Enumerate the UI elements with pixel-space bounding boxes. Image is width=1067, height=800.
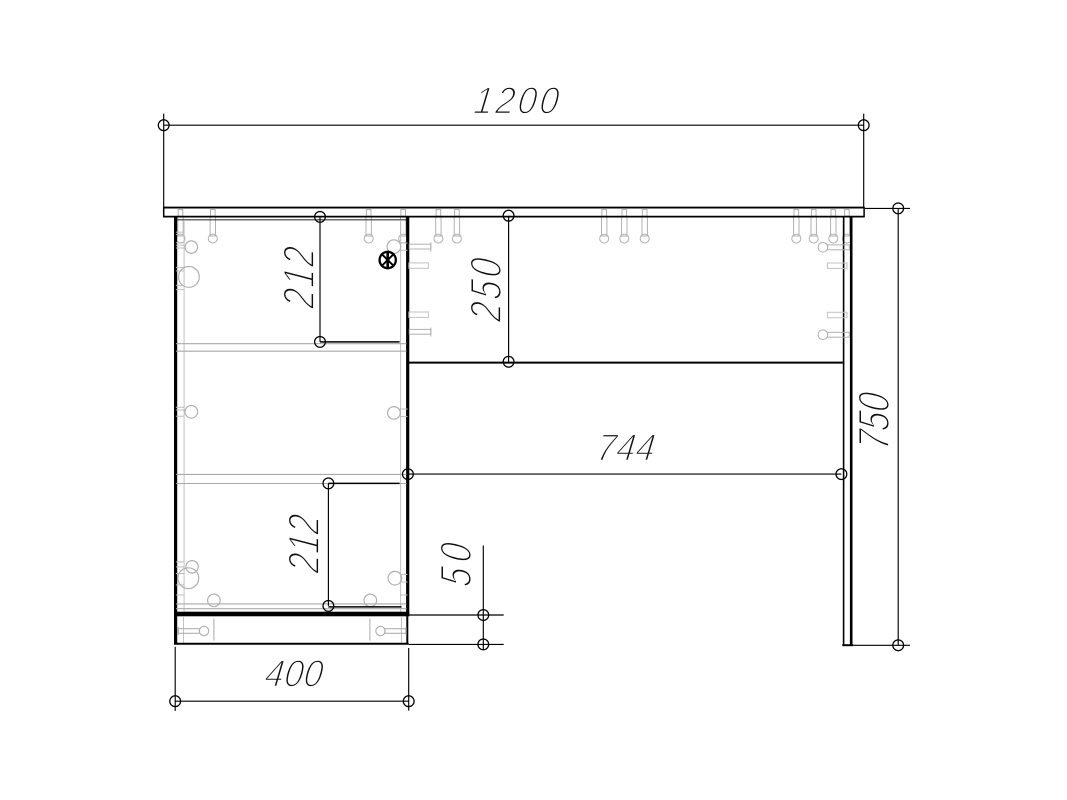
svg-text:212: 212 — [275, 242, 324, 311]
svg-text:250: 250 — [462, 252, 511, 324]
svg-text:400: 400 — [263, 652, 327, 695]
svg-text:212: 212 — [280, 511, 329, 575]
svg-text:50: 50 — [432, 535, 481, 589]
svg-text:1200: 1200 — [472, 79, 565, 122]
svg-text:750: 750 — [850, 390, 899, 452]
svg-text:744: 744 — [595, 426, 659, 469]
